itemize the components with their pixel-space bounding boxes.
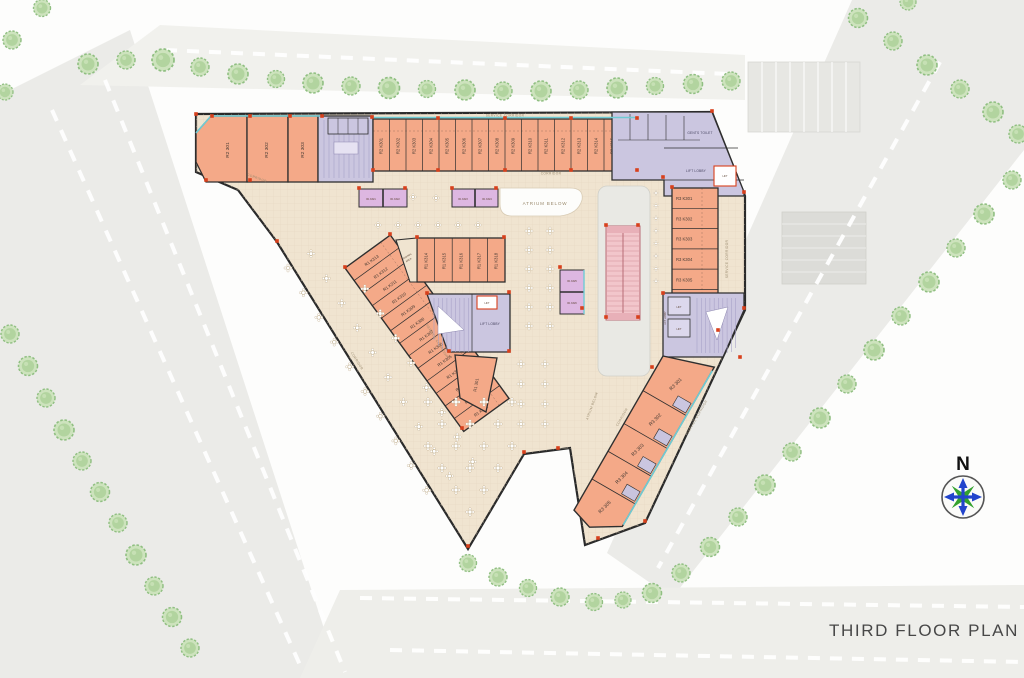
column-marker xyxy=(248,178,252,182)
atrium-label: ATRIUM BELOW xyxy=(523,201,568,206)
unit-label: R2 K301 xyxy=(379,137,384,154)
unit-label: R1 K314 xyxy=(424,252,429,269)
unit-label: R2 K307 xyxy=(478,137,483,154)
page-title: THIRD FLOOR PLAN xyxy=(829,621,1019,640)
tree-icon xyxy=(520,580,537,597)
tree-icon xyxy=(109,514,127,532)
column-marker xyxy=(343,265,347,269)
tree-icon xyxy=(303,73,323,93)
column-marker xyxy=(661,175,665,179)
tree-icon xyxy=(672,564,690,582)
unit-label: R2 K313 xyxy=(577,137,582,154)
column-marker xyxy=(636,223,640,227)
tree-icon xyxy=(191,58,209,76)
column-marker xyxy=(522,450,526,454)
column-marker xyxy=(580,306,584,310)
tree-icon xyxy=(729,508,747,526)
tree-icon xyxy=(919,272,939,292)
column-marker xyxy=(710,109,714,113)
unit-label: R1 K322 xyxy=(390,198,400,201)
unit-label: R2 K314 xyxy=(594,137,599,154)
tree-icon xyxy=(91,483,110,502)
unit-label: R3 K304 xyxy=(676,257,693,262)
room-label-lift-lobby: LIFT LOBBY xyxy=(480,322,501,326)
tree-icon xyxy=(864,340,884,360)
tree-icon xyxy=(722,72,740,90)
tree-icon xyxy=(551,588,569,606)
unit-label: R1 K326 xyxy=(567,302,577,305)
column-marker xyxy=(494,186,498,190)
unit-label: R2 K310 xyxy=(528,137,533,154)
column-marker xyxy=(204,178,208,182)
column-marker xyxy=(450,186,454,190)
column-marker xyxy=(569,168,573,172)
corridor-label: SERVICE CORRIDOR xyxy=(725,239,729,278)
tree-icon xyxy=(117,51,135,69)
room-label-lift: LIFT xyxy=(723,175,728,178)
unit-label: R2 K305 xyxy=(445,137,450,154)
column-marker xyxy=(403,186,407,190)
column-marker xyxy=(210,114,214,118)
escalators xyxy=(606,226,640,320)
tree-icon xyxy=(884,32,902,50)
column-marker xyxy=(503,168,507,172)
tree-icon xyxy=(951,80,969,98)
column-marker xyxy=(650,365,654,369)
unit-label: R2 K302 xyxy=(396,137,401,154)
column-marker xyxy=(742,190,746,194)
unit-label: R2 K303 xyxy=(412,137,417,154)
column-marker xyxy=(643,519,647,523)
tree-icon xyxy=(152,49,174,71)
column-marker xyxy=(670,185,674,189)
column-marker xyxy=(604,315,608,319)
unit-label: R1 K317 xyxy=(477,252,482,269)
tree-icon xyxy=(810,408,830,428)
column-marker xyxy=(370,115,374,119)
tree-icon xyxy=(34,0,51,16)
floor-plan-page: R2 301 R2 302 R2 303 R2 K301 R2 K302 R2 … xyxy=(0,0,1024,678)
tree-icon xyxy=(1003,171,1021,189)
unit-label: R1 K324 xyxy=(482,198,492,201)
tree-icon xyxy=(19,357,38,376)
compass: N xyxy=(942,454,984,518)
column-marker xyxy=(288,114,292,118)
column-marker xyxy=(194,112,198,116)
tree-icon xyxy=(615,592,631,608)
corridor-label: CORRIDOR xyxy=(541,172,562,176)
tree-icon xyxy=(684,75,703,94)
room-label-lift: LIFT xyxy=(485,302,490,305)
unit-label: R3 K301 xyxy=(676,196,693,201)
column-marker xyxy=(248,114,252,118)
tree-icon xyxy=(73,452,91,470)
column-marker xyxy=(742,306,746,310)
column-marker xyxy=(415,235,419,239)
tree-icon xyxy=(228,64,248,84)
tree-icon xyxy=(643,584,662,603)
unit-label: R1 K323 xyxy=(458,198,468,201)
tree-icon xyxy=(783,443,801,461)
tree-icon xyxy=(917,55,937,75)
tree-icon xyxy=(701,538,720,557)
unit-label: R1 K325 xyxy=(567,280,577,283)
column-marker xyxy=(507,290,511,294)
column-marker xyxy=(466,544,470,548)
unit-label: R2 K304 xyxy=(429,137,434,154)
tree-icon xyxy=(755,475,775,495)
unit-label: R1 K318 xyxy=(494,252,499,269)
tree-icon xyxy=(181,639,199,657)
column-marker xyxy=(502,235,506,239)
tree-icon xyxy=(647,78,664,95)
unit-label: R3 K305 xyxy=(676,277,693,282)
column-marker xyxy=(716,328,720,332)
unit-label: R1 K316 xyxy=(459,252,464,269)
column-marker xyxy=(604,223,608,227)
tree-icon xyxy=(163,608,182,627)
unit-label: R2 K312 xyxy=(561,137,566,154)
room-label-gents-toilet: GENTS TOILET xyxy=(687,131,712,135)
tree-icon xyxy=(849,9,868,28)
unit-label: R1 K321 xyxy=(366,198,376,201)
tree-icon xyxy=(460,555,477,572)
tree-icon xyxy=(37,389,55,407)
unit-label: R2 K309 xyxy=(511,137,516,154)
tree-icon xyxy=(983,102,1003,122)
column-marker xyxy=(388,232,392,236)
column-marker xyxy=(558,265,562,269)
column-marker xyxy=(275,239,279,243)
unit-label: R2 303 xyxy=(300,142,306,158)
tree-icon xyxy=(342,77,360,95)
tree-icon xyxy=(419,81,436,98)
tree-icon xyxy=(489,568,507,586)
column-marker xyxy=(507,349,511,353)
tree-icon xyxy=(974,204,994,224)
unit-label: R1 K315 xyxy=(442,252,447,269)
tree-icon xyxy=(268,71,285,88)
column-marker xyxy=(357,186,361,190)
room-label-lift: LIFT xyxy=(677,306,682,309)
unit-label: R2 K308 xyxy=(495,137,500,154)
northwest-retail-units: R2 301 R2 302 R2 303 xyxy=(196,116,318,182)
column-marker xyxy=(320,114,324,118)
tree-icon xyxy=(494,82,512,100)
column-marker xyxy=(556,446,560,450)
tree-icon xyxy=(1,325,19,343)
unit-label: R2 301 xyxy=(225,142,231,158)
top-kiosk-strip: R2 K301 R2 K302 R2 K303 R2 K304 R2 K305 … xyxy=(373,119,637,171)
mid-kiosk-block: R1 K314 R1 K315 R1 K316 R1 K317 R1 K318 … xyxy=(396,238,505,282)
tree-icon xyxy=(947,239,965,257)
column-marker xyxy=(738,355,742,359)
tree-icon xyxy=(379,78,400,99)
column-marker xyxy=(371,168,375,172)
unit-label: R2 K306 xyxy=(462,137,467,154)
tree-icon xyxy=(54,420,74,440)
corridor-label: SERVICE CORRIDOR xyxy=(486,114,525,118)
column-marker xyxy=(436,116,440,120)
column-marker xyxy=(596,536,600,540)
northwest-stair-core xyxy=(318,116,373,182)
column-marker xyxy=(636,315,640,319)
unit-label: R2 K311 xyxy=(544,137,549,154)
tree-icon xyxy=(455,80,475,100)
column-marker xyxy=(569,116,573,120)
tree-icon xyxy=(531,81,551,101)
tree-icon xyxy=(3,31,21,49)
column-marker xyxy=(425,291,429,295)
tree-icon xyxy=(570,81,588,99)
column-marker xyxy=(460,426,464,430)
compass-north-label: N xyxy=(956,454,970,475)
tree-icon xyxy=(126,545,146,565)
room-label-lift-lobby: LIFT LOBBY xyxy=(664,311,667,325)
floor-plan-drawing: R2 301 R2 302 R2 303 R2 K301 R2 K302 R2 … xyxy=(0,0,1024,678)
room-label-lift-lobby: LIFT LOBBY xyxy=(686,169,707,173)
unit-label: R3 K302 xyxy=(676,217,693,222)
column-marker xyxy=(635,116,639,120)
unit-label: R3 K303 xyxy=(676,237,693,242)
room-label-lift: LIFT xyxy=(677,328,682,331)
tree-icon xyxy=(838,375,856,393)
tree-icon xyxy=(145,577,163,595)
column-marker xyxy=(447,349,451,353)
tree-icon xyxy=(607,78,627,98)
column-marker xyxy=(635,168,639,172)
tree-icon xyxy=(586,594,603,611)
column-marker xyxy=(436,168,440,172)
tree-icon xyxy=(78,54,98,74)
column-marker xyxy=(661,291,665,295)
tree-icon xyxy=(892,307,910,325)
unit-label: R2 302 xyxy=(264,142,270,158)
